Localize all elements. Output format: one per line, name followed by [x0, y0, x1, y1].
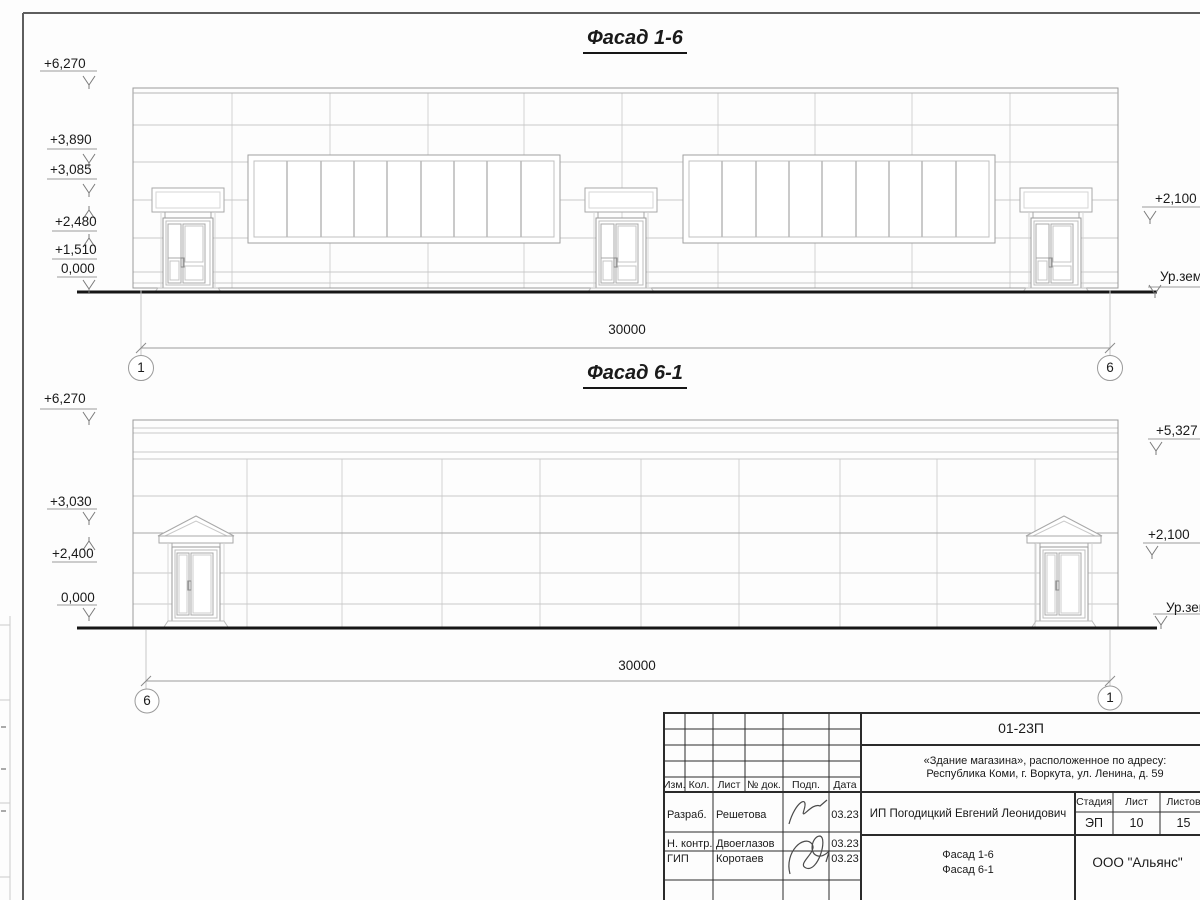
elev-mark-f1-1510: +1,510 — [55, 242, 97, 257]
col-header-kol: Кол. — [685, 779, 713, 791]
row-name-razrab: Решетова — [716, 809, 766, 821]
left-margin-table — [0, 616, 10, 900]
col-header-izm: Изм. — [663, 779, 685, 791]
entrance-door-right-rear — [1026, 516, 1102, 627]
elev-mark-f2-3030: +3,030 — [50, 494, 92, 509]
entrance-door-middle — [585, 188, 657, 293]
elev-mark-f1-0000: 0,000 — [61, 261, 95, 276]
project-address-line1: «Здание магазина», расположенное по адре… — [880, 755, 1200, 768]
row-role-gip: ГИП — [667, 853, 689, 865]
elev-mark-f2-2100: +2,100 — [1148, 527, 1190, 542]
facade-6-1-title: Фасад 6-1 — [555, 362, 715, 385]
sheets-total: 15 — [1160, 816, 1200, 830]
ground-level-label-f1: Ур.зем — [1160, 269, 1200, 284]
row-name-gip: Коротаев — [716, 853, 764, 865]
stage-value: ЭП — [1075, 816, 1113, 830]
row-date-razrab: 03.23 — [829, 809, 861, 821]
sheets-label: Листов — [1160, 796, 1200, 808]
dimension-label-f1: 30000 — [597, 322, 657, 337]
row-date-gip: 03.23 — [829, 853, 861, 865]
sheet-label: Лист — [1113, 796, 1160, 808]
document-number: 01-23П — [861, 720, 1181, 736]
elev-mark-f2-5327: +5,327 — [1156, 423, 1198, 438]
axis-bubble-1-f1: 1 — [128, 355, 154, 381]
elev-mark-f2-0000: 0,000 — [61, 590, 95, 605]
drawing-name: Фасад 1-6 Фасад 6-1 — [861, 835, 1075, 890]
drawing-sheet: Фасад 1-6 +6,270 +3,890 +3,085 +2,480 +1… — [0, 0, 1200, 900]
project-address-line2: Республика Коми, г. Воркута, ул. Ленина,… — [880, 768, 1200, 781]
entrance-door-left — [152, 188, 224, 293]
col-header-list: Лист — [713, 779, 745, 791]
ground-level-label-f2: Ур.зем — [1166, 600, 1200, 615]
facade-1-6-title: Фасад 1-6 — [555, 27, 715, 50]
drawing-name-line2: Фасад 6-1 — [942, 863, 993, 878]
company-name: ООО "Альянс" — [1075, 835, 1200, 890]
elev-mark-f1-2480: +2,480 — [55, 214, 97, 229]
project-address: «Здание магазина», расположенное по адре… — [880, 755, 1200, 781]
axis-bubble-1-f2: 1 — [1097, 685, 1123, 711]
elev-mark-f1-3890: +3,890 — [50, 132, 92, 147]
entrance-door-left-rear — [158, 516, 234, 627]
dimension-label-f2: 30000 — [607, 658, 667, 673]
client-name: ИП Погодицкий Евгений Леонидович — [861, 792, 1075, 835]
drawing-name-line1: Фасад 1-6 — [942, 848, 993, 863]
sheet-number: 10 — [1113, 816, 1160, 830]
row-date-nkontr: 03.23 — [829, 838, 861, 850]
elev-mark-f1-6270: +6,270 — [44, 56, 86, 71]
row-role-razrab: Разраб. — [667, 809, 707, 821]
row-role-nkontr: Н. контр. — [667, 838, 712, 850]
col-header-data: Дата — [829, 779, 861, 791]
elev-mark-f2-6270: +6,270 — [44, 391, 86, 406]
entrance-door-right — [1020, 188, 1092, 293]
row-name-nkontr: Двоеглазов — [716, 838, 774, 850]
window-band-right — [683, 155, 995, 243]
elev-mark-f1-3085: +3,085 — [50, 162, 92, 177]
col-header-podp: Подп. — [783, 779, 829, 791]
stage-label: Стадия — [1075, 796, 1113, 808]
col-header-ndok: № док. — [745, 779, 783, 791]
axis-bubble-6-f1: 6 — [1097, 355, 1123, 381]
signature-marks — [789, 800, 829, 874]
window-band-left — [248, 155, 560, 243]
elev-mark-f2-2400: +2,400 — [52, 546, 94, 561]
elev-mark-f1-2100: +2,100 — [1155, 191, 1197, 206]
axis-bubble-6-f2: 6 — [134, 688, 160, 714]
